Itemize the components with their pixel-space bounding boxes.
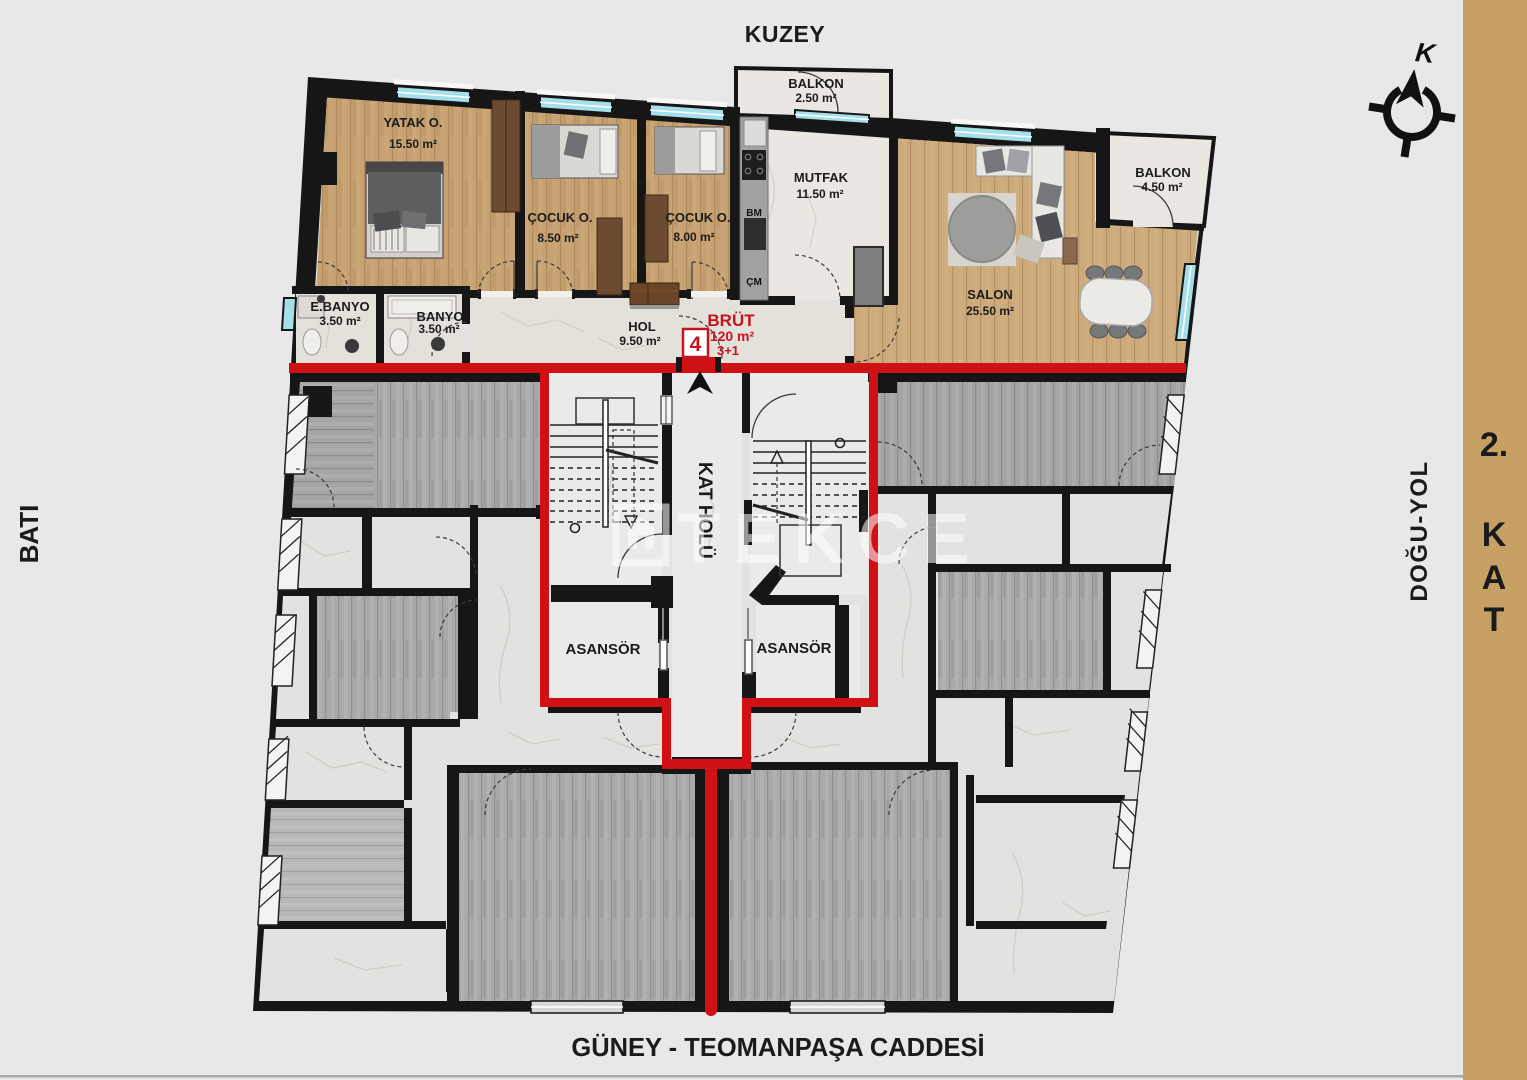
svg-text:GÜNEY - TEOMANPAŞA CADDESİ: GÜNEY - TEOMANPAŞA CADDESİ (571, 1033, 984, 1062)
svg-text:KUZEY: KUZEY (745, 21, 825, 47)
svg-text:BATI: BATI (14, 505, 44, 564)
svg-text:YATAK O.: YATAK O. (384, 115, 443, 130)
svg-text:A: A (1482, 559, 1507, 597)
svg-text:K: K (1482, 516, 1507, 554)
svg-text:11.50 m²: 11.50 m² (796, 187, 843, 201)
svg-text:ASANSÖR: ASANSÖR (756, 640, 831, 657)
svg-text:3+1: 3+1 (717, 343, 739, 358)
svg-text:3.50 m²: 3.50 m² (319, 314, 360, 328)
svg-text:BM: BM (746, 208, 762, 219)
svg-text:T: T (1484, 601, 1505, 639)
svg-text:SALON: SALON (967, 287, 1013, 302)
svg-text:E.BANYO: E.BANYO (310, 299, 369, 314)
svg-text:9.50 m²: 9.50 m² (619, 334, 660, 348)
svg-text:BALKON: BALKON (788, 76, 844, 91)
svg-text:BALKON: BALKON (1135, 165, 1191, 180)
svg-text:ASANSÖR: ASANSÖR (565, 641, 640, 658)
svg-text:8.50 m²: 8.50 m² (537, 231, 578, 245)
svg-text:ÇOCUK O.: ÇOCUK O. (528, 210, 593, 225)
svg-text:2.: 2. (1480, 426, 1508, 464)
svg-text:8.00 m²: 8.00 m² (673, 230, 714, 244)
svg-text:MUTFAK: MUTFAK (794, 170, 849, 185)
svg-text:4: 4 (690, 333, 702, 356)
svg-text:TEKCE: TEKCE (677, 500, 983, 579)
svg-text:120 m²: 120 m² (710, 328, 755, 344)
svg-text:HOL: HOL (628, 319, 656, 334)
svg-text:DOĞU-YOL: DOĞU-YOL (1405, 460, 1433, 601)
svg-text:4.50 m²: 4.50 m² (1141, 180, 1182, 194)
svg-text:3.50 m²: 3.50 m² (418, 322, 459, 336)
svg-text:25.50 m²: 25.50 m² (966, 304, 1014, 318)
svg-text:ÇOCUK O.: ÇOCUK O. (666, 210, 731, 225)
svg-text:ÇM: ÇM (746, 277, 762, 288)
svg-text:2.50 m²: 2.50 m² (795, 91, 836, 105)
svg-text:15.50 m²: 15.50 m² (389, 137, 437, 151)
